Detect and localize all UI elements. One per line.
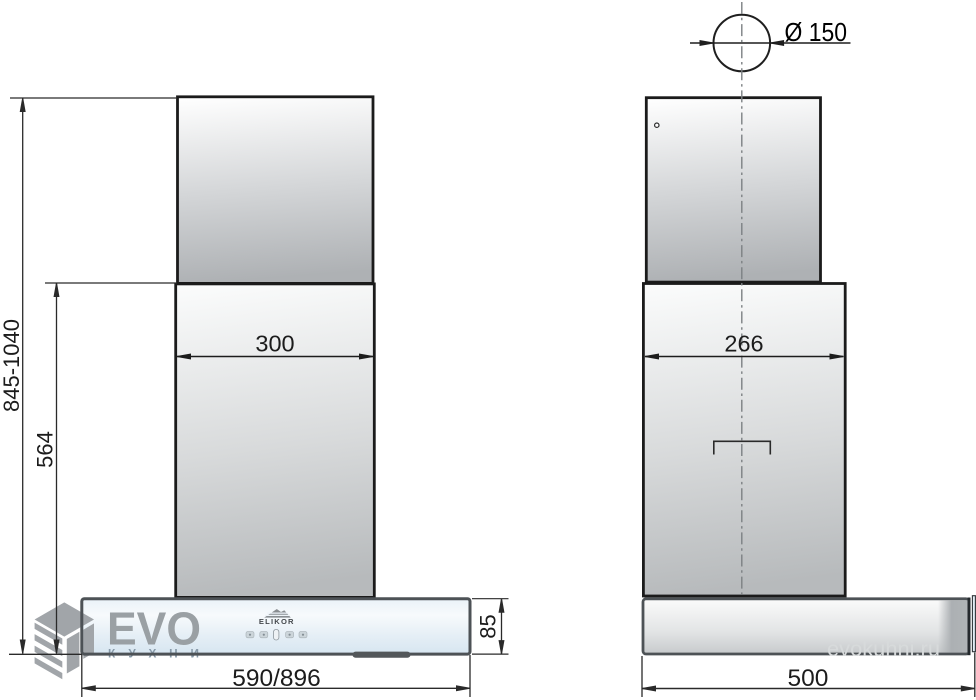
svg-text:500: 500 <box>788 665 829 692</box>
svg-text:ELIKOR: ELIKOR <box>259 617 295 626</box>
svg-text:590/896: 590/896 <box>232 665 321 692</box>
svg-text:300: 300 <box>255 331 294 357</box>
svg-text:Ø 150: Ø 150 <box>785 17 848 47</box>
svg-text:266: 266 <box>724 331 763 357</box>
svg-text:evokuhni.ru: evokuhni.ru <box>827 638 940 661</box>
svg-text:85: 85 <box>475 614 500 638</box>
svg-text:845-1040: 845-1040 <box>0 319 24 412</box>
svg-text:564: 564 <box>33 431 58 468</box>
